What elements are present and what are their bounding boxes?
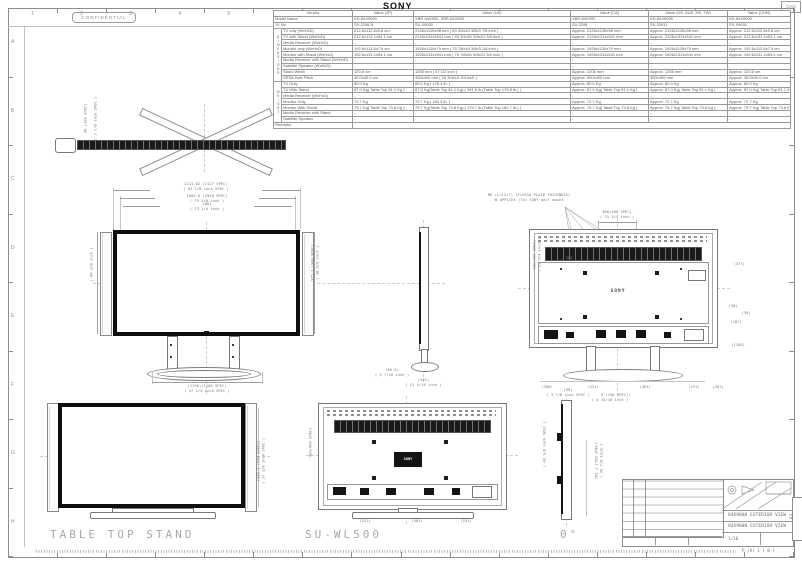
dim-label: 2111.82 (2127 SPEC) ( 83 1/8 inch SPEC ) (150, 182, 262, 191)
ruler-tick (789, 419, 794, 420)
cell-line (655, 536, 656, 545)
vesa-hole (372, 476, 376, 480)
ext-line (300, 188, 301, 230)
dim-label: (207) (706, 385, 730, 390)
ruler-number: 4 (170, 11, 190, 17)
connector-block (596, 330, 606, 338)
tv-front (58, 403, 245, 508)
dim-label: 400(400 SPEC) ( 15 3/4 inch ) (532, 230, 541, 280)
ruler-tick (793, 552, 794, 557)
bezel-edge (561, 404, 563, 514)
dim-label: (938.1 (939 SPEC)) ( 37 3/8 inch SPEC ) (256, 424, 265, 498)
ruler-tick (204, 8, 205, 13)
dim-label: 781.1 (785 SPEC) ( 30 7/8 inch ) (594, 430, 603, 492)
divider (722, 510, 792, 511)
vent-row (538, 236, 707, 238)
ruler-number: 1 (23, 11, 43, 17)
spec-table: VendorValue (JP)Value (US)Value (CA)Valu… (273, 10, 791, 129)
confidential-stamp: CONFIDENTIAL (72, 12, 136, 23)
ruler-tick (8, 419, 13, 420)
dim-label: (463) (632, 385, 658, 390)
stand-base-side (411, 362, 439, 372)
sony-plate-logo: SONY (396, 457, 420, 461)
dim-label: (187) (724, 320, 748, 325)
dim-label: (541) ( 21 5/16 inch ) (396, 378, 451, 387)
connector-block (333, 487, 346, 495)
inner-frame-left (24, 26, 25, 547)
ruler-letter: G (11, 450, 15, 458)
dim-label: ( 42 1/8 inch SPEC ) (543, 414, 548, 474)
tv-front (113, 230, 300, 336)
divider (722, 521, 792, 522)
dim-line (97, 232, 98, 334)
dim-label: (321) (352, 519, 378, 524)
connector-block (360, 488, 369, 495)
vent-row (327, 410, 496, 412)
sheet-size: A3 (790, 514, 795, 519)
side-speaker-left (100, 232, 112, 336)
ruler-letter: H (11, 519, 15, 527)
connector-block (452, 488, 460, 495)
vesa-hole (583, 271, 587, 275)
rev-col-line (645, 479, 646, 536)
scale-value: 1/10 (728, 536, 738, 541)
rev-bottom-line (622, 536, 722, 537)
vesa-hole (372, 440, 376, 444)
connector-block (616, 330, 626, 338)
ground-line (540, 381, 705, 382)
connector-block (664, 332, 671, 338)
screw (170, 356, 172, 358)
ruler-tick (789, 351, 794, 352)
dim-label: (30) (736, 311, 756, 316)
ruler-tick (789, 145, 794, 146)
vent-row (538, 240, 707, 242)
ruler-letter: C (11, 176, 15, 184)
vesa-hole (444, 440, 448, 444)
ext-line (295, 196, 296, 230)
legal-microtext (36, 550, 736, 553)
ruler-letter: F (11, 382, 14, 390)
ruler-letter: A (11, 39, 14, 47)
stand-column (167, 336, 178, 371)
dim-label: 98 (100 SPEC) (84, 88, 89, 148)
bezel-edge (419, 232, 421, 344)
vesa-hole (655, 315, 659, 319)
ruler-letter: B (11, 108, 14, 116)
cell-line (688, 536, 689, 545)
drawing-subtitle: 84X9000 EXTERIOR VIEW (724, 524, 790, 529)
dim-label: (1196)(1200 SPEC) ( 47 1/4 inch SPEC ) (152, 384, 262, 393)
spec-remarks-row: Remarks (274, 122, 791, 128)
revision-table (622, 479, 724, 538)
dim-label: (377) (726, 262, 752, 267)
ruler-tick (8, 282, 13, 283)
connector-block (386, 488, 396, 495)
ruler-tick (8, 351, 13, 352)
connector-plate (684, 329, 704, 341)
vesa-hole (583, 315, 587, 319)
ruler-tick (8, 488, 13, 489)
mount-hook (557, 476, 562, 484)
vent-row (327, 414, 496, 416)
ruler-letter: D (11, 245, 15, 253)
drawing-sheet: 12345678910111213141516 ABCDEFGH CONFIDE… (0, 0, 802, 567)
speaker-top-view (55, 138, 76, 153)
screw (560, 268, 562, 270)
connector-block (636, 330, 646, 338)
connector-block (544, 330, 558, 339)
ruler-number: 5 (219, 11, 239, 17)
connector-block (566, 332, 574, 338)
ruler-tick (8, 145, 13, 146)
cell-line (760, 532, 761, 545)
screw (680, 268, 682, 270)
dim-label: (1185) (724, 343, 752, 348)
dim-label: (191) (454, 519, 478, 524)
projection-symbol (722, 480, 792, 510)
caption-su-wl500: SU-WL500 (305, 528, 382, 541)
ruler-tick (155, 8, 156, 13)
ruler-tick (8, 556, 13, 557)
ruler-tick (253, 8, 254, 13)
dim-label: 300 (560, 256, 578, 261)
dim-label: 400(400 SPEC) (309, 415, 314, 469)
stand-column (229, 336, 240, 371)
sony-rear-logo: SONY (604, 289, 632, 295)
connector-plate (472, 486, 492, 498)
screw (232, 344, 234, 346)
ruler-tick (8, 214, 13, 215)
dim-label: ( 3 7/8 inch SPEC ) (94, 88, 99, 148)
vesa-hole (444, 476, 448, 480)
ext-line (262, 372, 263, 384)
caption-zero-deg: 0° (560, 528, 579, 541)
page-note: P.(A) 1 ( 8 ) (742, 548, 775, 553)
ext-line (113, 188, 114, 230)
dim-label: (58) (722, 304, 744, 309)
inner-frame-top (8, 26, 273, 27)
ruler-tick (8, 77, 13, 78)
dim-label: ( 44 3/8 inch ) (90, 234, 95, 294)
connector-block (424, 488, 434, 495)
drawing-title: 84X9000 EXTERIOR VIEW (724, 513, 790, 518)
dim-label: (98) ( 3 7/8 inch SPEC ) (536, 388, 600, 397)
screw (170, 344, 172, 346)
ruler-tick (57, 8, 58, 13)
ruler-letter: E (11, 313, 14, 321)
caption-table-top-stand: TABLE TOP STAND (50, 528, 194, 541)
divider (722, 532, 792, 533)
vesa-hole (655, 271, 659, 275)
panel-top-view (77, 140, 286, 150)
dim-label: (86.5) ( 3 7/16 inch ) (372, 368, 412, 377)
ext-line (586, 440, 587, 516)
mount-hook (557, 433, 562, 441)
dim-label: 975.1 (980 SPEC) ( 38 5/8 inch ) (310, 235, 319, 291)
ruler-tick (789, 214, 794, 215)
screw (232, 356, 234, 358)
dim-label: (191) (682, 385, 706, 390)
ruler-tick (789, 282, 794, 283)
screw (560, 318, 562, 320)
dim-label: (463) (404, 519, 430, 524)
screw (680, 318, 682, 320)
logo-mark (204, 331, 209, 333)
label-plate (688, 270, 706, 281)
rev-col-line (633, 479, 634, 536)
speaker-band (334, 420, 491, 433)
stand-base-inner (157, 370, 251, 378)
ext-line (120, 196, 121, 230)
stand-base-plate (90, 512, 216, 519)
dim-label: 1861 ( 73 1/4 inch ) (160, 202, 254, 211)
